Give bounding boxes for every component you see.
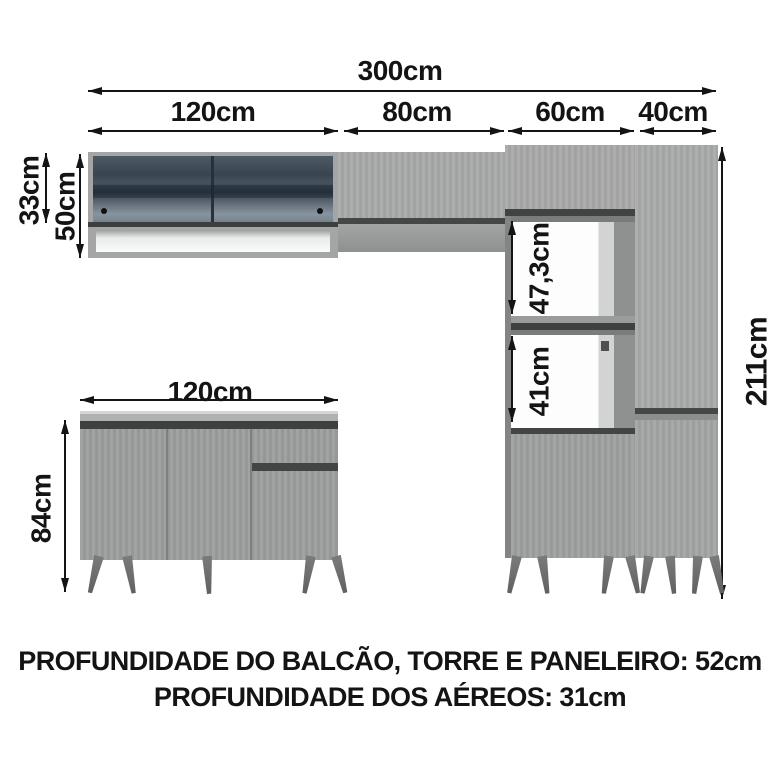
dim-arrow-counter-height [64, 420, 66, 592]
dim-label-total-width: 300cm [330, 56, 470, 87]
dim-label-counter-width: 120cm [150, 377, 270, 408]
countertop [80, 411, 338, 421]
cabinet-leg [625, 555, 643, 594]
glass-knob-left-icon [101, 208, 107, 214]
wall-cabinet-80 [338, 150, 505, 252]
dim-arrow-upper-niche [511, 221, 513, 314]
cabinet-leg [299, 555, 315, 594]
cabinet-leg [331, 555, 350, 594]
counter-drawer-strip [252, 463, 338, 471]
cabinet-leg [537, 555, 552, 594]
dim-label-counter-height: 84cm [27, 453, 58, 563]
tower-top-door [505, 145, 635, 209]
counter-door-divider-1 [166, 429, 168, 560]
cabinet-leg [122, 555, 138, 594]
dim-label-section-120: 120cm [153, 97, 273, 128]
dim-label-upper-niche: 47,3cm [525, 208, 556, 328]
cabinet-leg [85, 555, 104, 594]
cabinet-leg [504, 555, 522, 594]
wall-cabinet-120-gap [88, 222, 338, 227]
dim-arrow-section-80 [344, 130, 504, 132]
glass-knob-right-icon [317, 208, 323, 214]
counter-door-divider-2 [250, 429, 252, 560]
dim-arrow-counter-width [80, 399, 338, 401]
tower-niche-fitting [601, 341, 609, 351]
cabinet-leg [637, 555, 653, 594]
dim-arrow-section-60 [508, 130, 634, 132]
wall-cabinet-80-underside [338, 224, 505, 252]
cabinet-leg [599, 555, 614, 594]
dim-arrow-section-40 [640, 130, 716, 132]
glass-reflection-band [93, 185, 333, 198]
dim-label-section-40: 40cm [613, 97, 733, 128]
cabinet-leg [689, 555, 703, 594]
counter-cabinet [80, 411, 338, 560]
cabinet-leg [202, 556, 214, 594]
counter-handle-strip [80, 421, 338, 429]
dim-arrow-section-120 [88, 130, 338, 132]
tall-cabinet [635, 143, 718, 558]
dim-arrow-glass-height [45, 153, 47, 223]
cabinet-leg [665, 555, 679, 594]
dim-arrow-cabinet-height [79, 154, 81, 258]
dim-arrow-total-height [721, 147, 723, 599]
tall-cabinet-lower-door [635, 420, 718, 558]
wall-cabinet-120 [88, 152, 338, 258]
kitchen-dimension-diagram: 300cm 120cm 80cm 60cm 40cm 33cm 50cm [0, 0, 780, 780]
dim-label-lower-niche: 41cm [525, 321, 556, 441]
dim-arrow-lower-niche [511, 336, 513, 422]
footer-depth-line1: PROFUNDIDADE DO BALCÃO, TORRE E PANELEIR… [0, 646, 780, 677]
tower-base-door [505, 428, 635, 558]
wall-cabinet-120-open-niche [96, 230, 330, 252]
dim-label-section-60: 60cm [510, 97, 630, 128]
dim-label-section-80: 80cm [357, 97, 477, 128]
footer-depth-line2: PROFUNDIDADE DOS AÉREOS: 31cm [0, 682, 780, 713]
wall-cabinet-80-door [338, 152, 505, 218]
dim-arrow-total-width [88, 90, 716, 92]
dim-label-total-height: 211cm [741, 292, 774, 432]
dim-label-glass-height: 33cm [15, 135, 46, 245]
counter-body [80, 429, 338, 560]
tall-cabinet-upper-door [635, 145, 718, 408]
glass-doors [93, 156, 333, 222]
